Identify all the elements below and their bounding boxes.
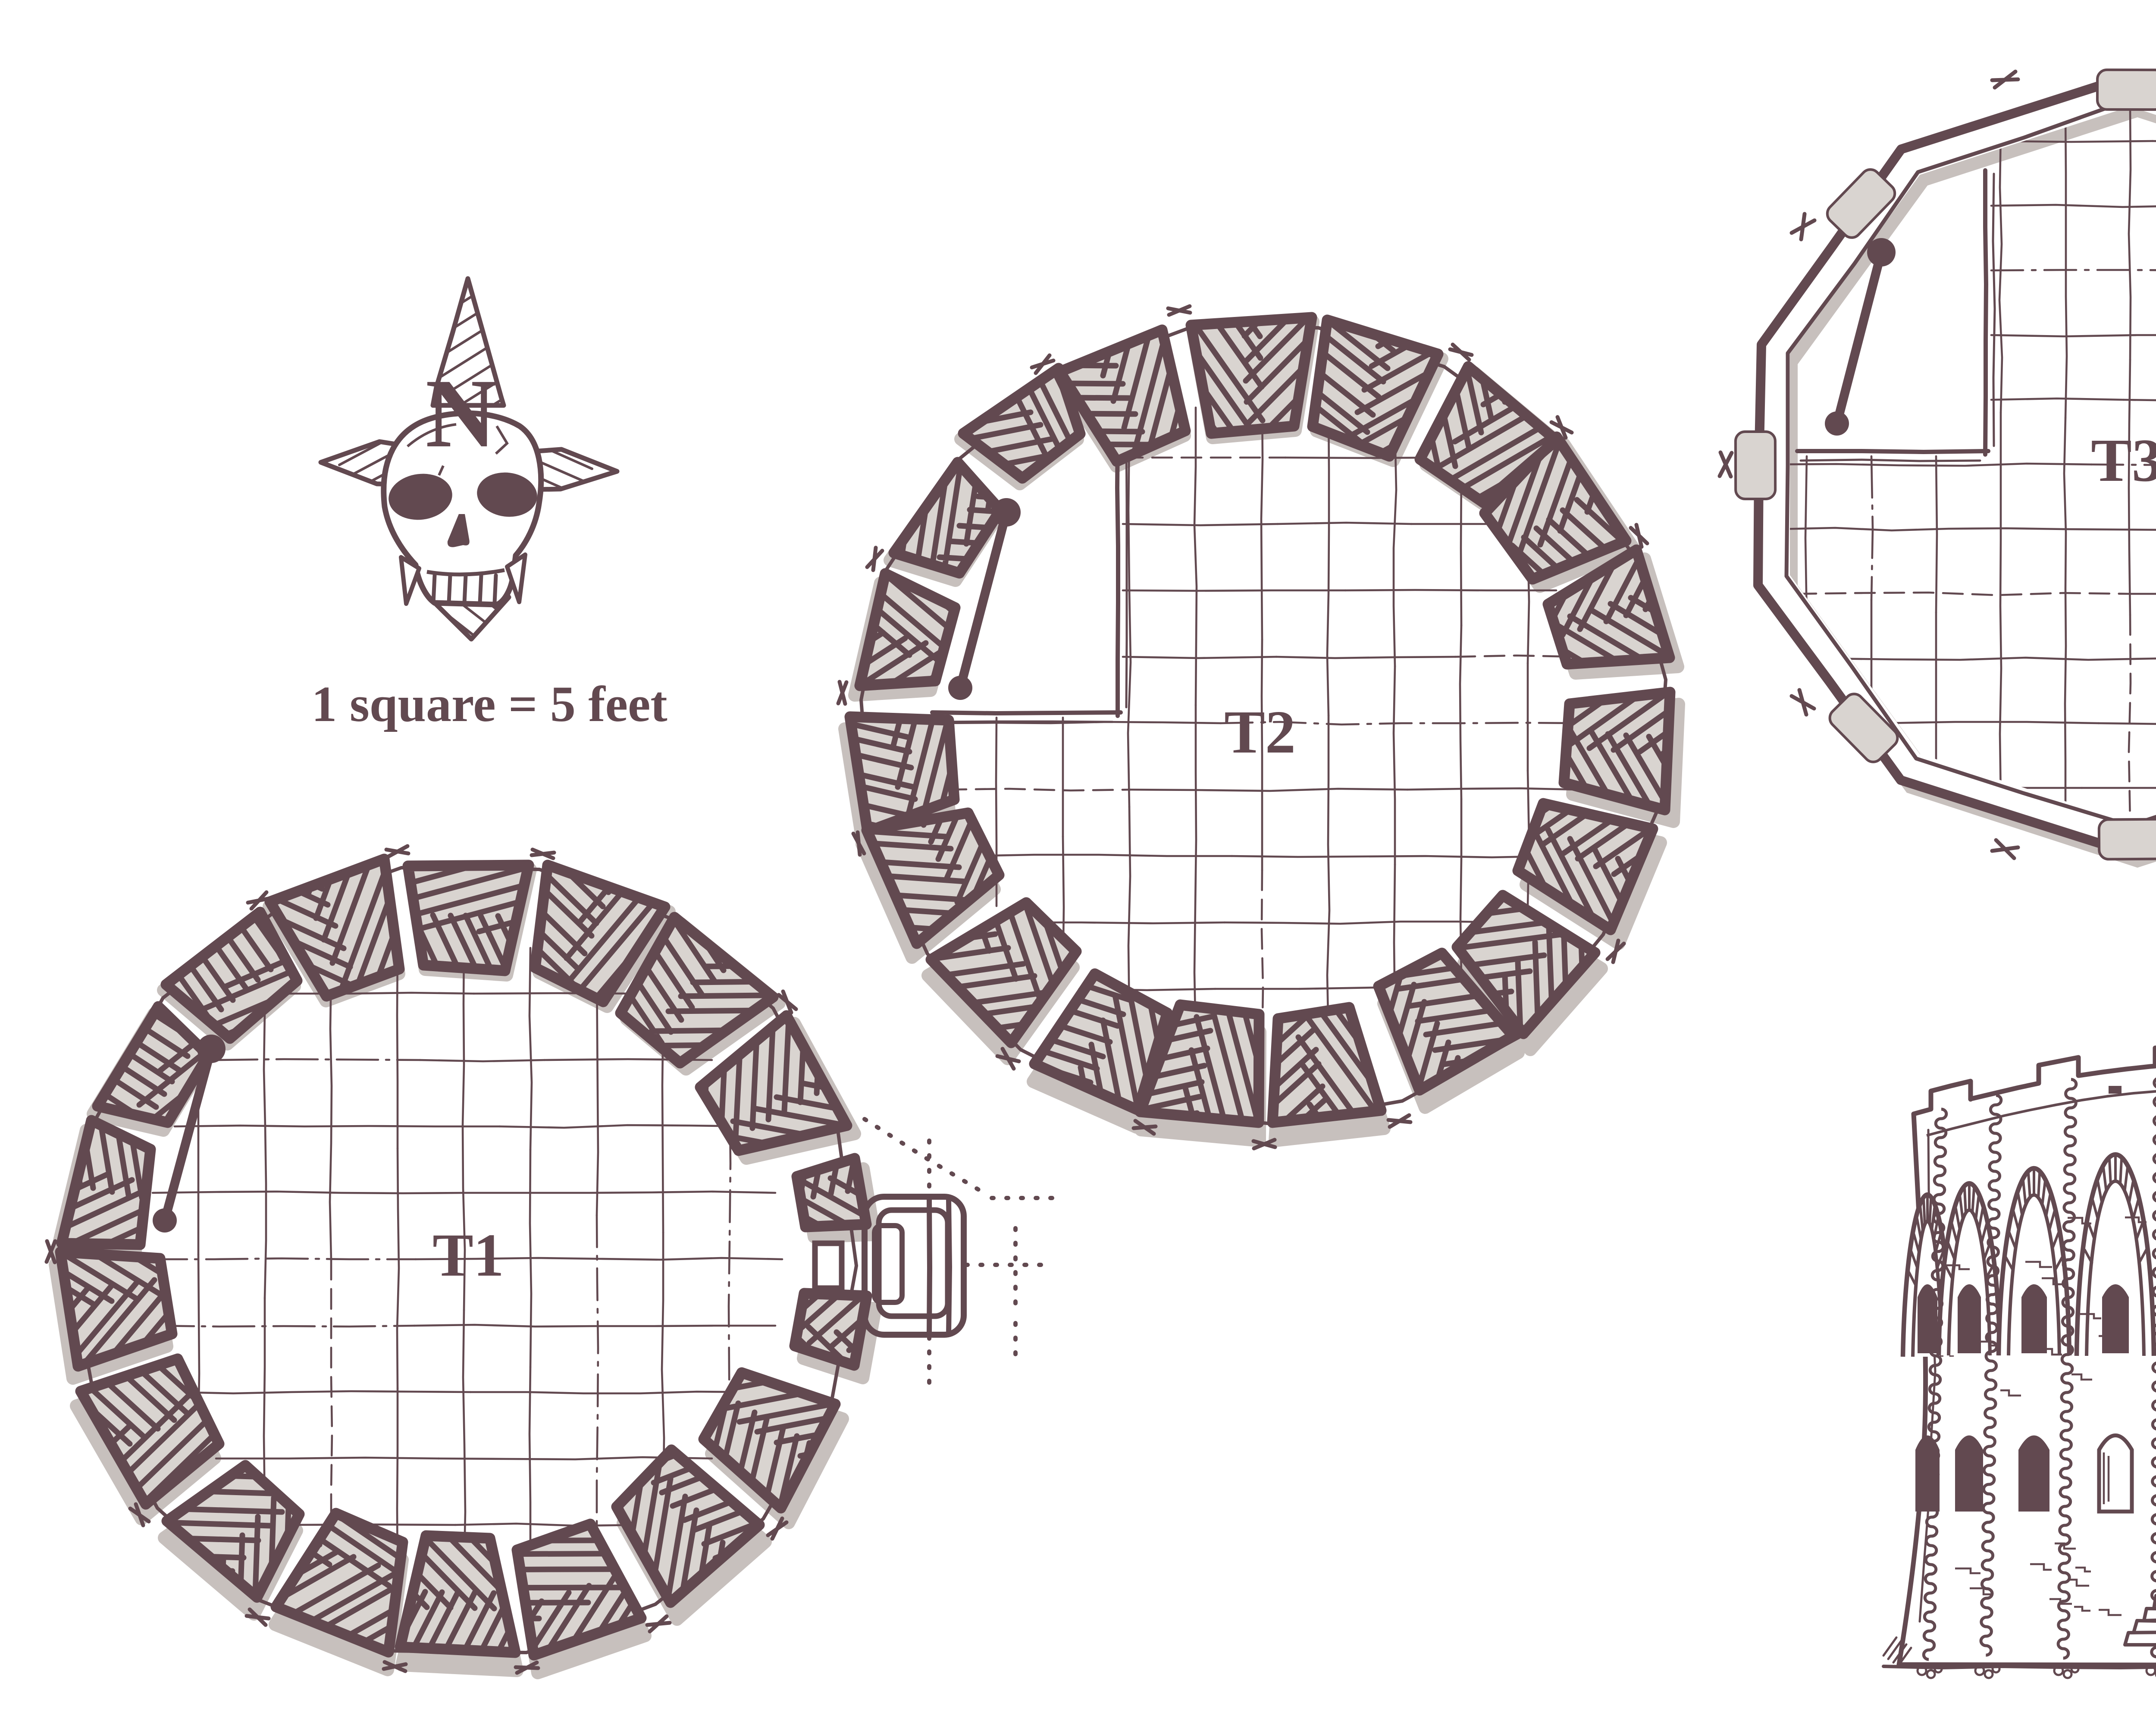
- svg-text:N: N: [426, 359, 497, 468]
- svg-text:T1: T1: [432, 1221, 504, 1289]
- svg-text:T2: T2: [1224, 698, 1296, 766]
- svg-text:1 square = 5 feet: 1 square = 5 feet: [311, 676, 667, 732]
- svg-text:T3: T3: [2091, 426, 2156, 494]
